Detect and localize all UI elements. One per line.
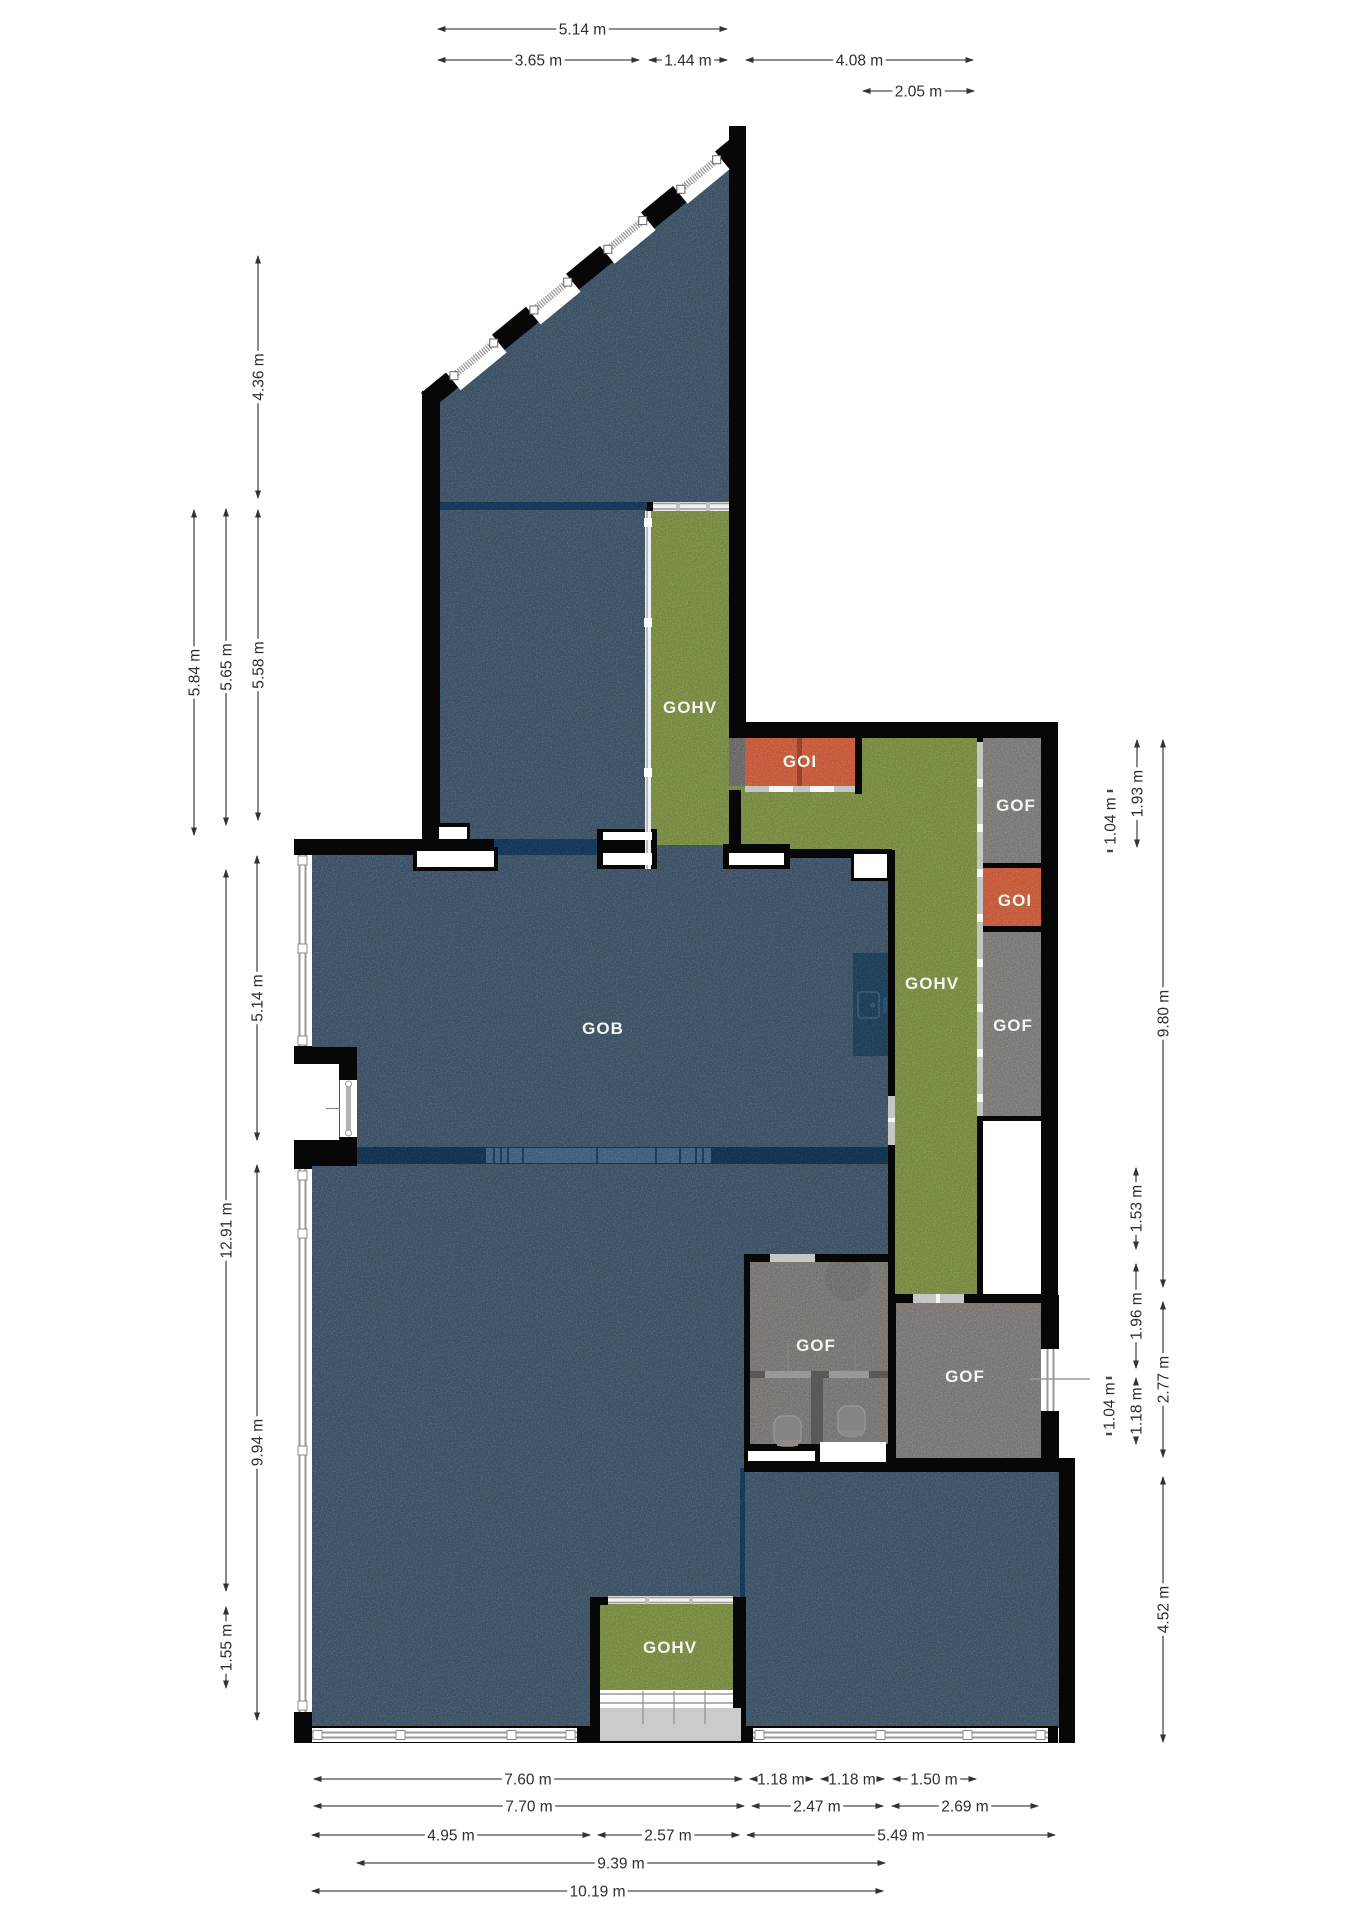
svg-text:1.04 m: 1.04 m	[1103, 797, 1120, 844]
svg-text:3.65 m: 3.65 m	[515, 53, 562, 70]
svg-text:1.55 m: 1.55 m	[219, 1624, 236, 1671]
svg-text:4.52 m: 4.52 m	[1156, 1586, 1173, 1633]
svg-text:GOHV: GOHV	[643, 1638, 697, 1657]
svg-text:5.65 m: 5.65 m	[219, 643, 236, 690]
svg-text:7.60 m: 7.60 m	[504, 1772, 551, 1789]
svg-text:9.80 m: 9.80 m	[1156, 990, 1173, 1037]
svg-text:GOHV: GOHV	[663, 698, 717, 717]
svg-text:12.91 m: 12.91 m	[219, 1202, 236, 1258]
svg-text:2.69 m: 2.69 m	[941, 1799, 988, 1816]
svg-text:GOI: GOI	[998, 891, 1032, 910]
svg-text:2.47 m: 2.47 m	[793, 1799, 840, 1816]
svg-text:GOI: GOI	[783, 752, 817, 771]
svg-text:4.08 m: 4.08 m	[836, 53, 883, 70]
svg-text:9.94 m: 9.94 m	[250, 1419, 267, 1466]
svg-text:10.19 m: 10.19 m	[569, 1884, 625, 1901]
svg-text:GOF: GOF	[996, 796, 1036, 815]
svg-text:5.84 m: 5.84 m	[187, 649, 204, 696]
svg-text:1.50 m: 1.50 m	[910, 1772, 957, 1789]
svg-text:GOB: GOB	[582, 1019, 624, 1038]
svg-text:2.05 m: 2.05 m	[895, 84, 942, 101]
svg-text:1.44 m: 1.44 m	[664, 53, 711, 70]
svg-text:1.18 m: 1.18 m	[828, 1772, 875, 1789]
svg-text:4.95 m: 4.95 m	[427, 1828, 474, 1845]
svg-text:1.93 m: 1.93 m	[1130, 770, 1147, 817]
svg-text:GOF: GOF	[796, 1336, 836, 1355]
svg-text:2.57 m: 2.57 m	[644, 1828, 691, 1845]
svg-text:5.14 m: 5.14 m	[559, 22, 606, 39]
svg-text:1.18 m: 1.18 m	[757, 1772, 804, 1789]
svg-text:GOF: GOF	[993, 1016, 1033, 1035]
svg-text:5.14 m: 5.14 m	[250, 974, 267, 1021]
svg-text:5.58 m: 5.58 m	[251, 641, 268, 688]
svg-text:1.96 m: 1.96 m	[1129, 1292, 1146, 1339]
svg-text:1.53 m: 1.53 m	[1129, 1185, 1146, 1232]
svg-text:7.70 m: 7.70 m	[505, 1799, 552, 1816]
svg-text:4.36 m: 4.36 m	[251, 353, 268, 400]
svg-text:1.04 m: 1.04 m	[1102, 1382, 1119, 1429]
svg-text:9.39 m: 9.39 m	[597, 1856, 644, 1873]
svg-text:GOHV: GOHV	[905, 974, 959, 993]
svg-text:1.18 m: 1.18 m	[1129, 1387, 1146, 1434]
svg-text:2.77 m: 2.77 m	[1156, 1356, 1173, 1403]
svg-text:5.49 m: 5.49 m	[877, 1828, 924, 1845]
svg-text:GOF: GOF	[945, 1367, 985, 1386]
